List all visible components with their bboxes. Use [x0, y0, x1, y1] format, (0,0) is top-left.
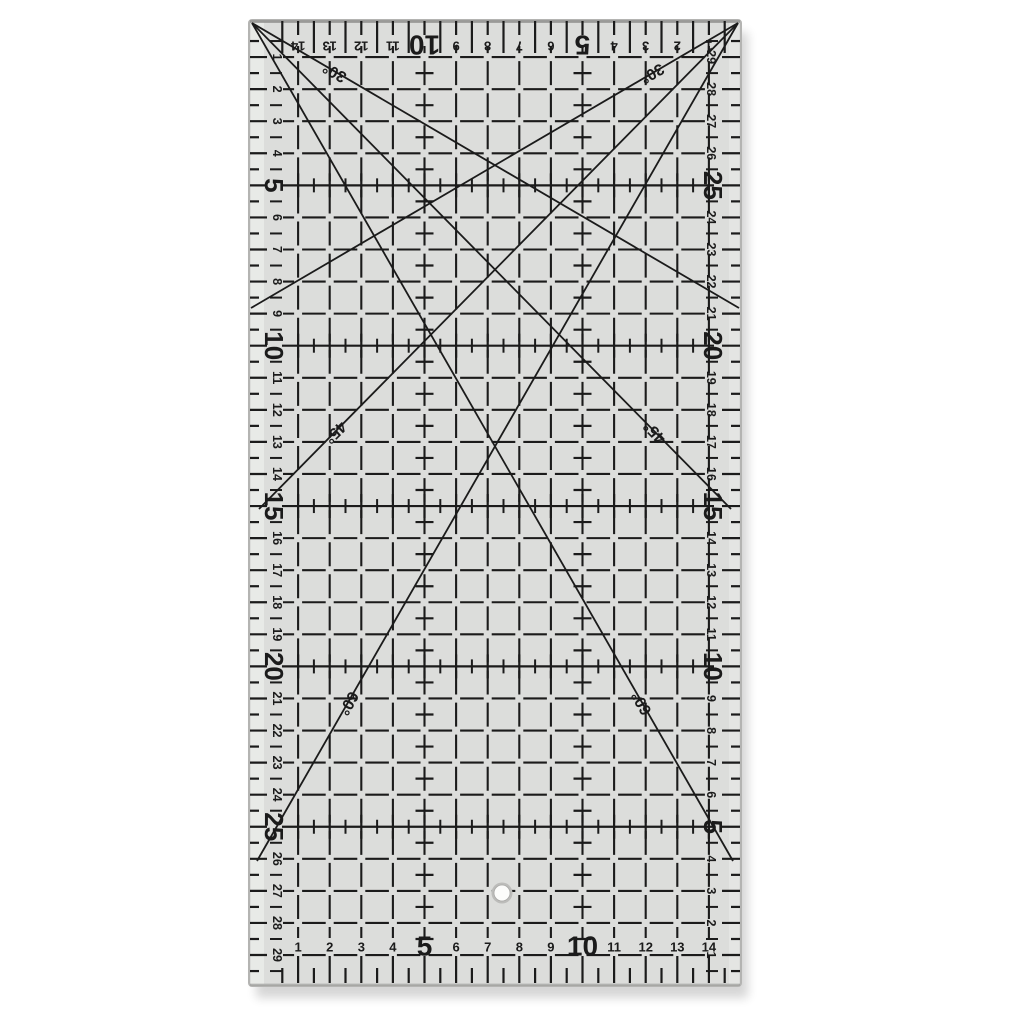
left-scale-number: 12 [270, 403, 284, 417]
left-scale-number: 7 [270, 246, 284, 253]
left-scale-number: 24 [270, 788, 284, 802]
top-scale-number: 7 [516, 39, 523, 54]
right-scale-number: 6 [704, 791, 718, 798]
right-scale-number: 26 [704, 146, 718, 160]
bottom-scale-number: 12 [638, 940, 652, 955]
left-scale-number: 19 [270, 627, 284, 641]
right-scale-number: 11 [704, 628, 718, 641]
right-scale-number: 16 [704, 467, 718, 481]
bottom-scale-number: 10 [567, 931, 598, 962]
right-scale-number: 9 [704, 695, 718, 702]
left-scale-number: 22 [270, 724, 284, 738]
right-scale-number: 4 [704, 855, 718, 862]
left-scale-number: 9 [270, 310, 284, 317]
left-scale-number: 28 [270, 916, 284, 930]
top-scale-number: 10 [409, 30, 440, 61]
top-scale-number: 12 [354, 39, 368, 54]
top-scale-number: 11 [386, 39, 400, 54]
top-scale-number: 14 [290, 39, 305, 54]
top-scale-number: 5 [575, 30, 591, 61]
left-scale-number: 2 [270, 86, 284, 93]
bottom-scale-number: 5 [417, 931, 433, 962]
right-scale-number: 12 [704, 595, 718, 609]
bottom-scale-number: 2 [326, 940, 333, 955]
photo-background: 30°30°45°45°60°60°1234567891011121314123… [0, 0, 1024, 1024]
left-scale-number: 21 [270, 692, 284, 706]
left-scale-number: 23 [270, 756, 284, 770]
left-scale-number: 29 [270, 948, 284, 962]
left-scale-number: 17 [270, 563, 284, 577]
right-scale-number: 17 [704, 435, 718, 449]
mounting-hole [492, 883, 513, 904]
top-scale-number: 13 [322, 39, 336, 54]
right-scale-number: 13 [704, 563, 718, 577]
ruler-graphic: 30°30°45°45°60°60°1234567891011121314123… [0, 0, 1024, 1024]
right-scale-number: 22 [704, 275, 718, 289]
bottom-scale-number: 9 [547, 940, 554, 955]
left-scale-number: 25 [259, 812, 289, 841]
top-scale-number: 8 [484, 39, 491, 54]
top-scale-number: 4 [610, 39, 618, 54]
left-scale-number: 15 [259, 492, 289, 521]
hole-center [494, 885, 510, 901]
right-scale-number: 27 [704, 114, 718, 128]
top-scale-number: 9 [452, 39, 459, 54]
right-scale-number: 25 [698, 171, 728, 200]
right-scale-number: 21 [704, 307, 718, 321]
left-scale-number: 13 [270, 435, 284, 449]
right-scale-number: 2 [704, 919, 718, 926]
left-scale-number: 27 [270, 884, 284, 898]
left-scale-number: 3 [270, 118, 284, 125]
right-scale-number: 10 [698, 652, 728, 681]
left-scale-number: 18 [270, 595, 284, 609]
left-scale-number: 8 [270, 278, 284, 285]
left-scale-number: 1 [270, 54, 284, 61]
right-scale-number: 19 [704, 371, 718, 385]
right-scale-number: 3 [704, 887, 718, 894]
bottom-scale-number: 6 [452, 940, 459, 955]
left-scale-number: 5 [259, 178, 289, 192]
right-margin-highlight [729, 22, 739, 984]
right-scale-number: 14 [704, 531, 718, 545]
right-scale-number: 28 [704, 82, 718, 96]
left-scale-number: 26 [270, 852, 284, 866]
left-scale-number: 14 [270, 467, 284, 481]
left-scale-number: 11 [270, 371, 284, 384]
left-scale-number: 6 [270, 214, 284, 221]
right-scale-number: 18 [704, 403, 718, 417]
right-scale-number: 5 [698, 820, 728, 834]
quilting-ruler: 30°30°45°45°60°60°1234567891011121314123… [0, 0, 1024, 1024]
right-scale-number: 7 [704, 759, 718, 766]
bottom-scale-number: 13 [670, 940, 684, 955]
left-scale-number: 20 [259, 652, 289, 681]
bottom-scale-number: 11 [607, 940, 621, 955]
left-scale-number: 16 [270, 531, 284, 545]
bottom-scale-number: 4 [389, 940, 397, 955]
top-scale-number: 2 [674, 39, 681, 54]
right-scale-number: 23 [704, 243, 718, 257]
right-scale-number: 8 [704, 727, 718, 734]
left-scale-number: 10 [259, 331, 289, 360]
right-scale-number: 24 [704, 210, 718, 224]
bottom-scale-number: 1 [294, 940, 301, 955]
bottom-scale-number: 3 [358, 940, 365, 955]
bottom-scale-number: 7 [484, 940, 491, 955]
right-scale-number: 15 [698, 492, 728, 521]
right-scale-number: 20 [698, 331, 728, 360]
right-scale-number: 29 [704, 50, 718, 64]
top-scale-number: 3 [642, 39, 649, 54]
right-scale-number: 1 [704, 952, 718, 959]
top-scale-number: 6 [547, 39, 554, 54]
bottom-scale-number: 8 [516, 940, 523, 955]
left-scale-number: 4 [270, 150, 284, 157]
